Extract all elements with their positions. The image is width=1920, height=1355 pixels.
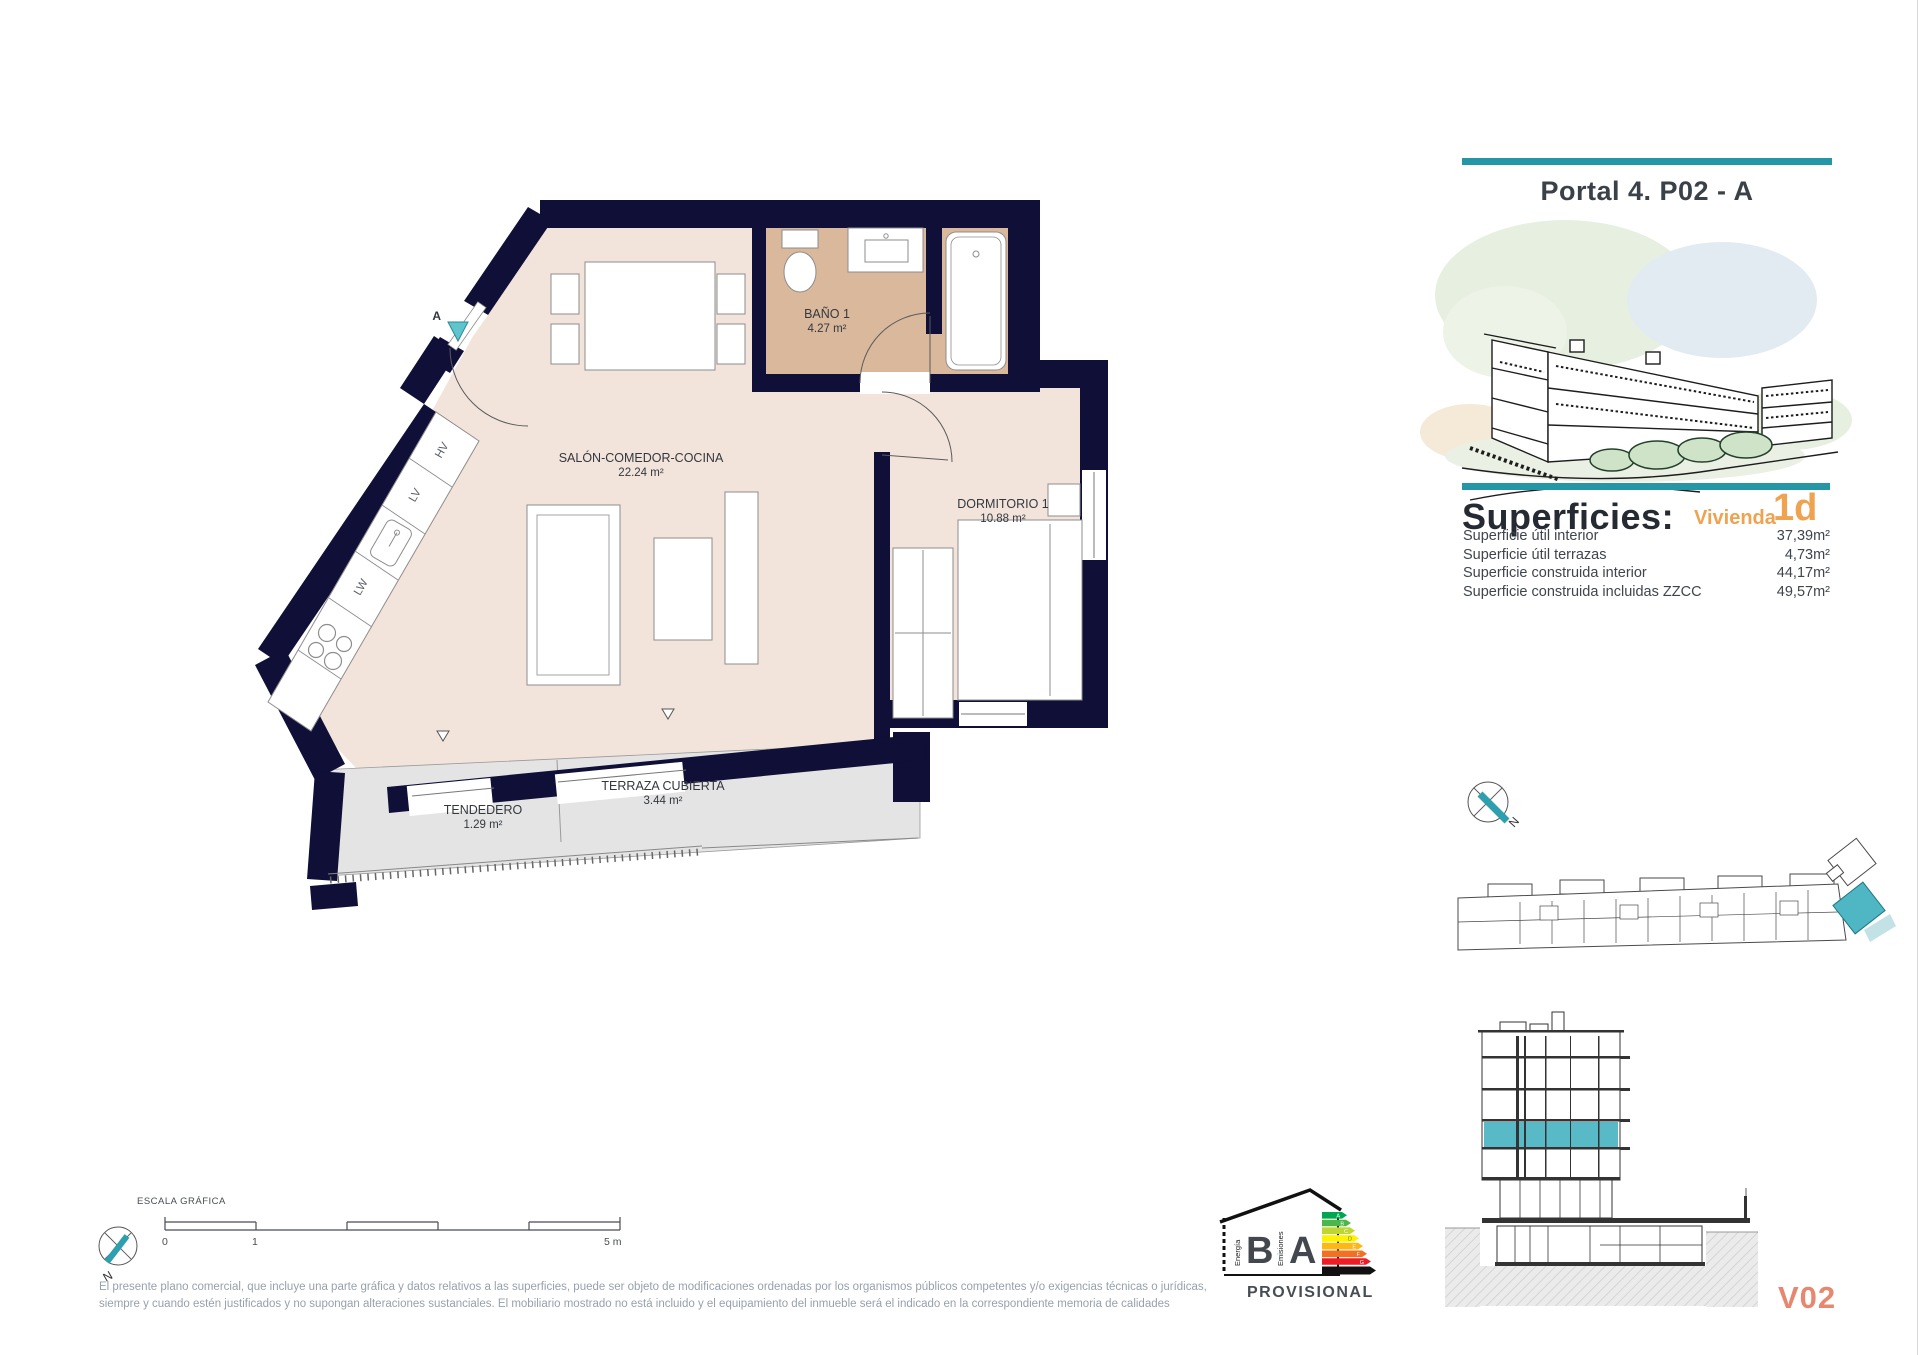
row-label: Superficie útil terrazas: [1463, 546, 1606, 565]
entrance-label: A: [432, 309, 441, 323]
key-plan: [1458, 838, 1896, 950]
scale-bar-title: ESCALA GRÁFICA: [137, 1196, 226, 1207]
chair: [717, 324, 745, 364]
svg-text:B: B: [1340, 1221, 1344, 1227]
toilet-bowl: [784, 252, 816, 292]
row-value: 37,39m²: [1777, 527, 1830, 546]
energy-letter: B: [1246, 1230, 1273, 1272]
room-area: 4.27 m²: [804, 322, 850, 337]
highlighted-floor: [1484, 1122, 1618, 1148]
north-label: N: [1506, 814, 1522, 830]
scale-tick-5: 5 m: [604, 1236, 622, 1248]
section-drawing: [1445, 1012, 1758, 1307]
chair: [717, 274, 745, 314]
disclaimer-line2: siempre y cuando estén justificados y no…: [99, 1296, 1239, 1313]
room-name: SALÓN-COMEDOR-COCINA: [559, 451, 724, 466]
table-row: Superficie útil terrazas 4,73m²: [1463, 546, 1830, 565]
row-label: Superficie útil interior: [1463, 527, 1598, 546]
chair: [551, 274, 579, 314]
scale-tick-1: 1: [252, 1236, 258, 1248]
sink-basin: [865, 240, 908, 262]
room-name: TERRAZA CUBIERTA: [601, 779, 724, 794]
chair: [551, 324, 579, 364]
svg-text:D: D: [1348, 1237, 1352, 1243]
svg-text:A: A: [1336, 1214, 1340, 1220]
emisiones-label: Emisiones: [1276, 1231, 1285, 1266]
toilet-tank: [782, 230, 818, 248]
room-area: 22.24 m²: [559, 466, 724, 481]
row-label: Superficie construida interior: [1463, 564, 1647, 583]
table-row: Superficie construida interior 44,17m²: [1463, 564, 1830, 583]
shelf-unit: [725, 492, 758, 664]
provisional-label: PROVISIONAL: [1247, 1284, 1374, 1302]
svg-text:G: G: [1360, 1260, 1364, 1266]
sofa: [527, 505, 620, 685]
superficies-table: Superficie útil interior 37,39m² Superfi…: [1463, 527, 1830, 601]
vivienda-code: 1d: [1773, 493, 1817, 523]
energia-label: Energía: [1233, 1239, 1242, 1266]
coffee-table: [654, 538, 712, 640]
room-name: DORMITORIO 1: [957, 497, 1048, 512]
room-area: 10.88 m²: [957, 512, 1048, 527]
compass-bottom-left: N: [99, 1227, 137, 1285]
room-label-salon: SALÓN-COMEDOR-COCINA 22.24 m²: [559, 451, 724, 481]
row-label: Superficie construida incluidas ZZCC: [1463, 583, 1702, 602]
room-label-tendedero: TENDEDERO 1.29 m²: [444, 803, 522, 833]
room-area: 1.29 m²: [444, 818, 522, 833]
section-code: V02: [1778, 1280, 1836, 1316]
nightstand: [1048, 484, 1080, 516]
building-illustration: [1420, 220, 1852, 500]
disclaimer-line1: El presente plano comercial, que incluye…: [99, 1279, 1239, 1296]
compass-right: N: [1468, 782, 1522, 830]
table-row: Superficie útil interior 37,39m²: [1463, 527, 1830, 546]
disclaimer: El presente plano comercial, que incluye…: [99, 1279, 1239, 1313]
compass-needle: [1480, 794, 1507, 821]
bed: [958, 520, 1082, 700]
scale-bar: 0 1 5 m: [162, 1217, 622, 1248]
room-label-terraza: TERRAZA CUBIERTA 3.44 m²: [601, 779, 724, 809]
row-value: 49,57m²: [1777, 583, 1830, 602]
teal-rule-top: [1462, 158, 1832, 165]
room-name: BAÑO 1: [804, 307, 850, 322]
svg-text:C: C: [1344, 1229, 1348, 1235]
compass-needle: [107, 1236, 127, 1262]
floor-plan-page: { "page": { "title_right": "Portal 4. P0…: [0, 0, 1920, 1355]
scale-tick-0: 0: [162, 1236, 168, 1248]
room-label-dormitorio: DORMITORIO 1 10.88 m²: [957, 497, 1048, 527]
room-label-bano: BAÑO 1 4.27 m²: [804, 307, 850, 337]
row-value: 44,17m²: [1777, 564, 1830, 583]
energy-rating-icon: B A Energía Emisiones A B C D E F G: [1220, 1190, 1376, 1275]
room-area: 3.44 m²: [601, 794, 724, 809]
energy-arrows: A B C D E F G: [1322, 1212, 1376, 1275]
row-value: 4,73m²: [1785, 546, 1830, 565]
dining-table: [585, 262, 715, 370]
room-name: TENDEDERO: [444, 803, 522, 818]
table-row: Superficie construida incluidas ZZCC 49,…: [1463, 583, 1830, 602]
svg-text:E: E: [1352, 1244, 1356, 1250]
emissions-letter: A: [1289, 1230, 1316, 1272]
page-title: Portal 4. P02 - A: [1540, 176, 1753, 207]
